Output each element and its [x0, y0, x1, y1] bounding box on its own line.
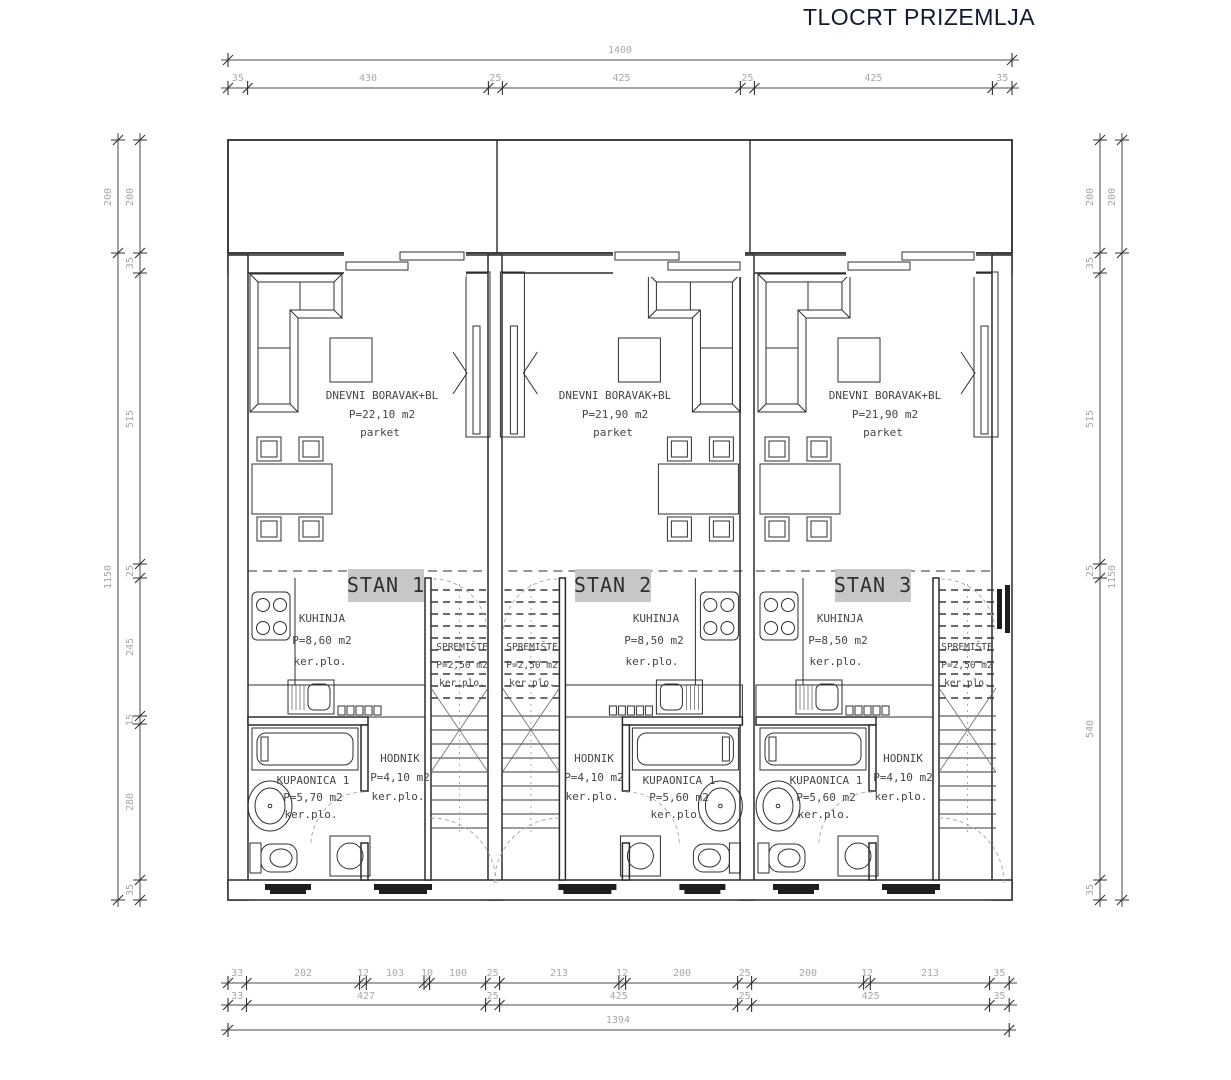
stan-2-label: STAN 2 [574, 573, 652, 597]
apt3-living-floor: parket [863, 426, 903, 439]
room-labels: DNEVNI BORAVAK+BL P=22,10 m2 parket DNEV… [277, 389, 993, 821]
apt1-hall-name: HODNIK [380, 752, 420, 765]
apt3-bath-floor: ker.plo. [798, 808, 851, 821]
dim-label: 10 [421, 968, 433, 979]
apt1-living-area: P=22,10 m2 [349, 408, 415, 421]
apt3-bath-area: P=5,60 m2 [796, 791, 856, 804]
dim-top: 1400 35 430 25 425 25 425 35 [221, 45, 1019, 95]
dim-label: 25 [741, 73, 753, 84]
apt2-hall-floor: ker.plo. [566, 790, 619, 803]
apt1-hall-floor: ker.plo. [372, 790, 425, 803]
page-title: TLOCRT PRIZEMLJA [803, 4, 1035, 30]
apt2-storage-name: SPREMIŠTE [506, 641, 558, 653]
apt3-hall-area: P=4,10 m2 [873, 771, 933, 784]
dim-label: 213 [921, 968, 939, 979]
dim-label: 200 [103, 188, 114, 206]
apt2-bath-area: P=5,60 m2 [649, 791, 709, 804]
apt2-kitchen-floor: ker.plo. [626, 655, 679, 668]
east-window [997, 589, 1002, 629]
stan-3-label: STAN 3 [834, 573, 912, 597]
dim-label: 202 [294, 968, 312, 979]
dim-label: 35 [993, 991, 1005, 1002]
apt3-living-area: P=21,90 m2 [852, 408, 918, 421]
dim-label: 515 [125, 410, 136, 428]
apt3-hall-name: HODNIK [883, 752, 923, 765]
apt1-living-name: DNEVNI BORAVAK+BL [326, 389, 439, 402]
dim-right: 200 35 515 25 540 35 200 1150 [1085, 133, 1129, 907]
dim-label: 33 [231, 968, 243, 979]
stan-1-label: STAN 1 [347, 573, 425, 597]
dim-label: 25 [489, 73, 501, 84]
apt1-kitchen-floor: ker.plo. [294, 655, 347, 668]
east-window [1005, 585, 1010, 633]
floor-plan-canvas: STAN 1 STAN 2 STAN 3 DNEVNI BORAVAK+BL P… [0, 0, 1231, 1080]
apt2-living-area: P=21,90 m2 [582, 408, 648, 421]
apt3-kitchen-floor: ker.plo. [810, 655, 863, 668]
dim-label: 35 [1085, 884, 1096, 896]
apt3-lower-rooms [756, 571, 1004, 894]
apt1-bath-name: KUPAONICA 1 [277, 774, 350, 787]
apt2-lower-rooms [494, 571, 742, 894]
apt1-bath-floor: ker.plo. [285, 808, 338, 821]
dim-label: 12 [861, 968, 873, 979]
dim-top-total: 1400 [608, 45, 632, 56]
apt1-living-floor: parket [360, 426, 400, 439]
west-wall [228, 255, 248, 900]
dim-label: 425 [610, 991, 628, 1002]
dim-label: 200 [799, 968, 817, 979]
apt3-living-furniture [758, 272, 998, 541]
dim-label: 425 [864, 73, 882, 84]
apt2-bath-floor: ker.plo. [651, 808, 704, 821]
dim-bottom-total: 1394 [606, 1015, 630, 1026]
dim-label: 12 [357, 968, 369, 979]
apt1-kitchen-name: KUHINJA [299, 612, 346, 625]
apt3-storage-area: P=2,50 m2 [941, 660, 992, 671]
dim-label: 200 [1107, 188, 1118, 206]
dim-label: 280 [125, 793, 136, 811]
dim-label: 25 [125, 565, 136, 577]
apt3-bath-name: KUPAONICA 1 [790, 774, 863, 787]
apt3-living-name: DNEVNI BORAVAK+BL [829, 389, 942, 402]
sliding-door-apt2 [613, 250, 745, 277]
apt1-storage-area: P=2,50 m2 [436, 660, 487, 671]
dim-label: 425 [862, 991, 880, 1002]
apt3-kitchen-area: P=8,50 m2 [808, 634, 868, 647]
dim-label: 200 [1085, 188, 1096, 206]
sliding-door-apt1 [344, 250, 466, 277]
dim-label: 35 [996, 73, 1008, 84]
apt1-living-furniture [250, 272, 490, 541]
apt1-storage-name: SPREMIŠTE [436, 641, 488, 653]
apt1-hall-area: P=4,10 m2 [370, 771, 430, 784]
apt2-living-furniture [500, 272, 740, 541]
apt2-kitchen-area: P=8,50 m2 [624, 634, 684, 647]
apt3-hall-floor: ker.plo. [875, 790, 928, 803]
dim-label: 25 [487, 991, 499, 1002]
dim-label: 35 [993, 968, 1005, 979]
apt2-living-name: DNEVNI BORAVAK+BL [559, 389, 672, 402]
apt1-kitchen-area: P=8,60 m2 [292, 634, 352, 647]
apt2-hall-area: P=4,10 m2 [564, 771, 624, 784]
floor-plan-drawing: STAN 1 STAN 2 STAN 3 DNEVNI BORAVAK+BL P… [0, 0, 1231, 1080]
dim-label: 12 [616, 968, 628, 979]
apt2-storage-area: P=2,50 m2 [506, 660, 557, 671]
apt2-kitchen-name: KUHINJA [633, 612, 680, 625]
dim-label: 25 [739, 991, 751, 1002]
apt3-storage-floor: ker.plo. [944, 678, 990, 689]
apt2-hall-name: HODNIK [574, 752, 614, 765]
dim-label: 200 [125, 188, 136, 206]
dim-label: 35 [125, 257, 136, 269]
apt2-storage-floor: ker.plo. [509, 678, 555, 689]
dim-label: 515 [1085, 410, 1096, 428]
east-wall [992, 255, 1012, 900]
dim-label: 1150 [103, 565, 114, 589]
apt2-living-floor: parket [593, 426, 633, 439]
dim-label: 1150 [1107, 565, 1118, 589]
dim-label: 427 [357, 991, 375, 1002]
apt3-kitchen-name: KUHINJA [817, 612, 864, 625]
dim-label: 35 [1085, 257, 1096, 269]
dim-label: 425 [612, 73, 630, 84]
dim-label: 33 [231, 991, 243, 1002]
sliding-door-apt3 [846, 250, 976, 277]
dim-label: 35 [232, 73, 244, 84]
dim-label: 25 [739, 968, 751, 979]
dim-label: 100 [449, 968, 467, 979]
dim-label: 35 [125, 884, 136, 896]
dim-bottom: 33 202 12 103 10 100 25 213 12 200 25 20… [221, 968, 1017, 1037]
terrace-band [228, 140, 1012, 253]
dim-label: 213 [550, 968, 568, 979]
dim-label: 430 [359, 73, 377, 84]
dim-left: 200 1150 200 35 515 25 245 15 280 35 [103, 133, 147, 907]
dim-label: 25 [487, 968, 499, 979]
dim-label: 15 [125, 714, 136, 726]
dim-label: 245 [125, 638, 136, 656]
apt1-storage-floor: ker.plo. [439, 678, 485, 689]
apt1-bath-area: P=5,70 m2 [283, 791, 343, 804]
dim-label: 540 [1085, 720, 1096, 738]
dim-label: 103 [386, 968, 404, 979]
apt2-bath-name: KUPAONICA 1 [643, 774, 716, 787]
apt3-storage-name: SPREMIŠTE [941, 641, 993, 653]
dim-label: 25 [1085, 565, 1096, 577]
apt1-lower-rooms [248, 571, 496, 894]
dim-label: 200 [673, 968, 691, 979]
